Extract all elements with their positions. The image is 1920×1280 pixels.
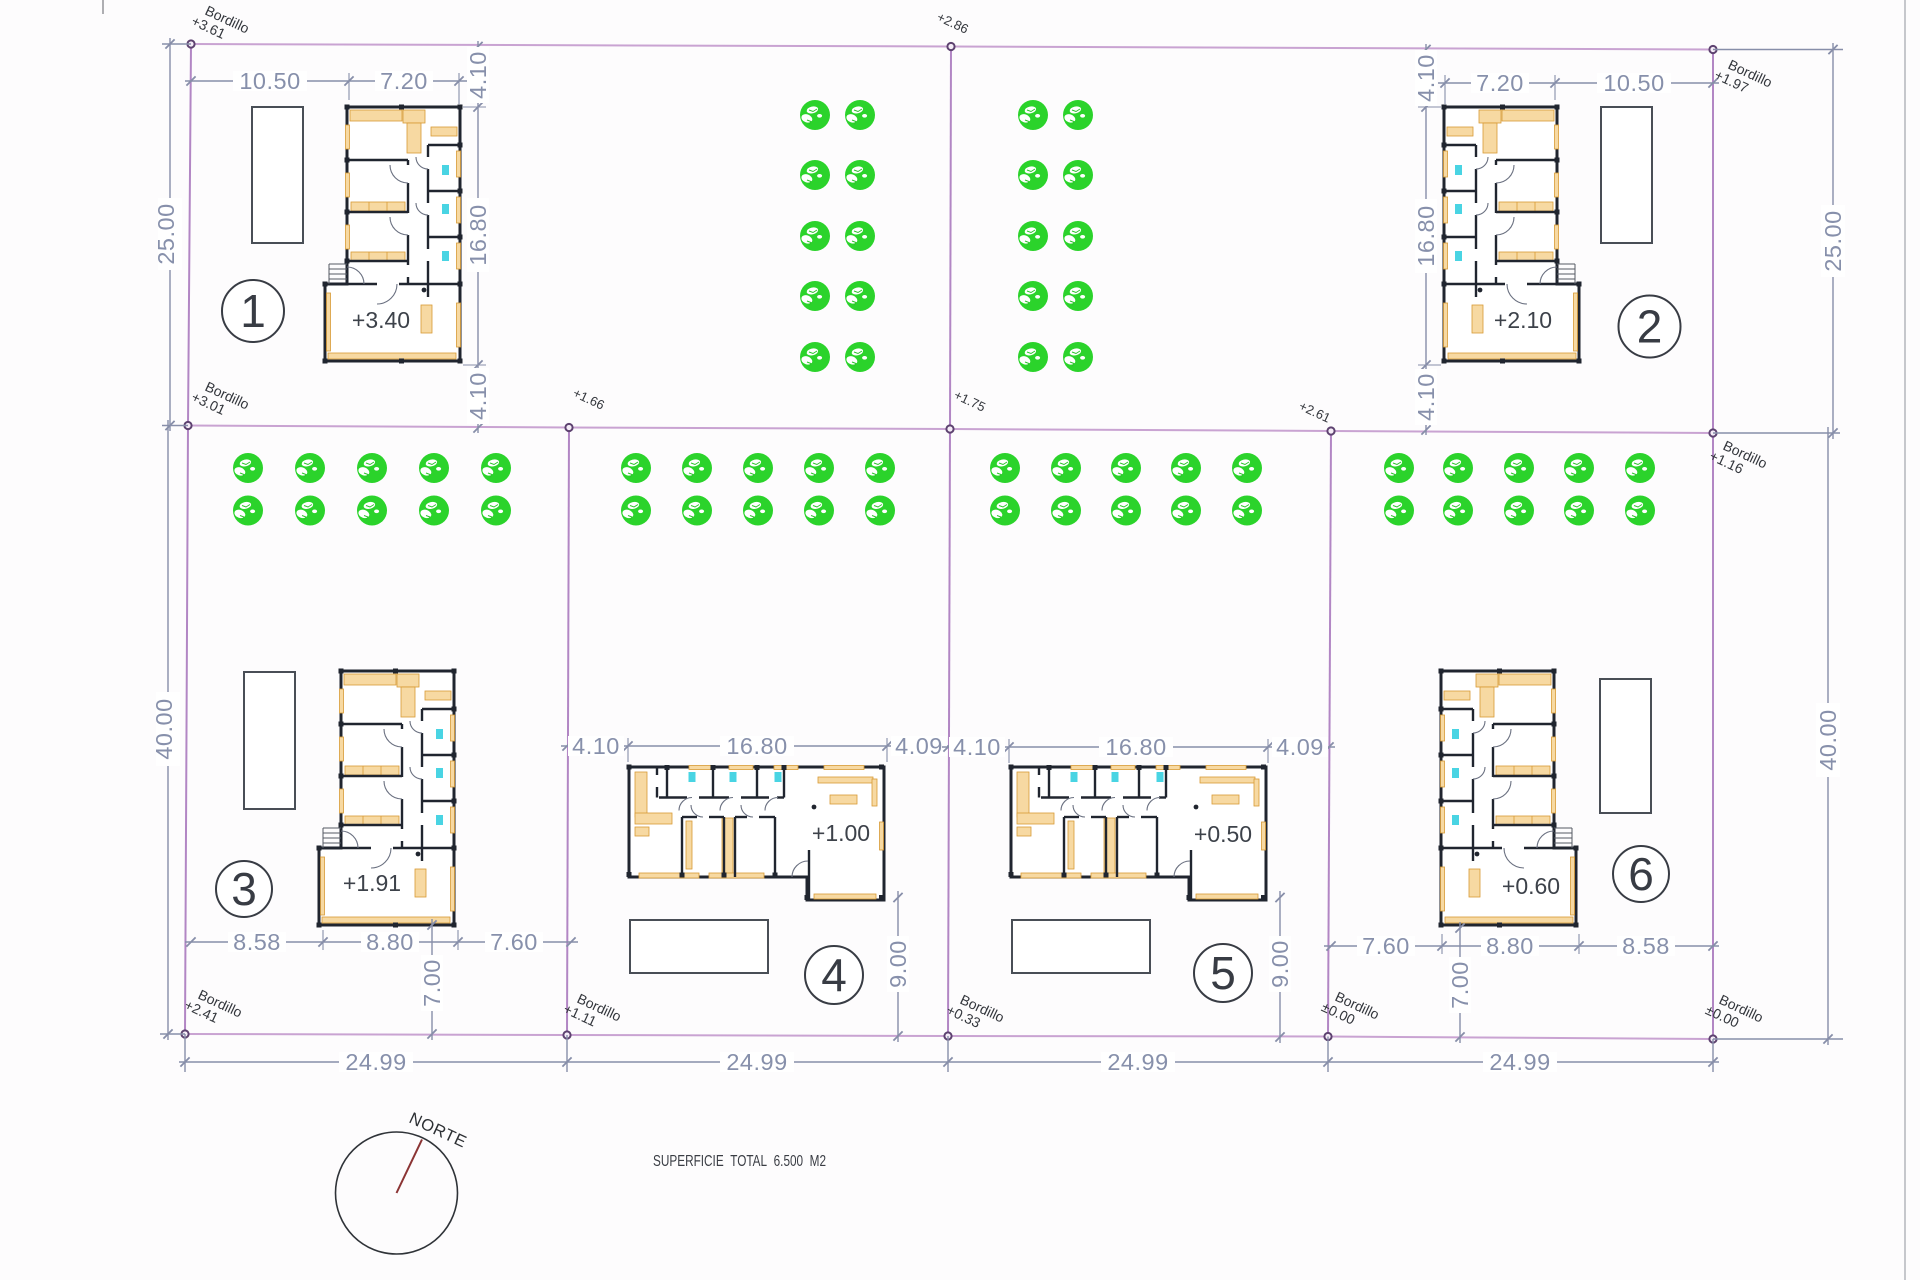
svg-text:4.10: 4.10: [953, 734, 1001, 760]
svg-text:+2.10: +2.10: [1494, 307, 1552, 333]
svg-text:8.80: 8.80: [1486, 933, 1534, 959]
svg-text:4: 4: [821, 949, 847, 1001]
svg-text:24.99: 24.99: [1489, 1049, 1550, 1075]
svg-text:7.60: 7.60: [490, 929, 538, 955]
svg-text:8.80: 8.80: [366, 929, 414, 955]
svg-text:7.20: 7.20: [1476, 70, 1524, 96]
svg-text:4.09: 4.09: [1276, 734, 1324, 760]
svg-text:9.00: 9.00: [1267, 940, 1293, 988]
svg-text:5: 5: [1210, 947, 1236, 999]
svg-text:4.09: 4.09: [895, 733, 943, 759]
svg-text:+0.50: +0.50: [1194, 821, 1252, 847]
svg-text:+1.91: +1.91: [343, 870, 401, 896]
svg-text:16.80: 16.80: [465, 204, 491, 265]
svg-text:10.50: 10.50: [239, 68, 300, 94]
svg-text:7.60: 7.60: [1362, 933, 1410, 959]
svg-text:40.00: 40.00: [1815, 709, 1841, 770]
svg-text:+1.00: +1.00: [812, 820, 870, 846]
svg-text:40.00: 40.00: [151, 698, 177, 759]
svg-text:8.58: 8.58: [1622, 933, 1670, 959]
svg-text:16.80: 16.80: [1413, 205, 1439, 266]
svg-text:24.99: 24.99: [345, 1049, 406, 1075]
svg-text:+0.60: +0.60: [1502, 873, 1560, 899]
svg-text:7.00: 7.00: [1447, 961, 1473, 1009]
svg-text:1: 1: [240, 285, 266, 337]
svg-text:10.50: 10.50: [1603, 70, 1664, 96]
svg-text:25.00: 25.00: [1820, 210, 1846, 271]
svg-text:7.20: 7.20: [380, 68, 428, 94]
svg-text:8.58: 8.58: [233, 929, 281, 955]
svg-text:16.80: 16.80: [726, 733, 787, 759]
svg-text:6: 6: [1628, 848, 1654, 900]
svg-text:7.00: 7.00: [419, 959, 445, 1007]
svg-text:24.99: 24.99: [726, 1049, 787, 1075]
svg-text:4.10: 4.10: [572, 733, 620, 759]
svg-text:4.10: 4.10: [1413, 54, 1439, 102]
svg-text:2: 2: [1637, 301, 1663, 353]
svg-text:SUPERFICIE TOTAL 6.500 M2: SUPERFICIE TOTAL 6.500 M2: [653, 1153, 826, 1170]
svg-text:4.10: 4.10: [1413, 373, 1439, 421]
svg-text:4.10: 4.10: [465, 372, 491, 420]
svg-text:9.00: 9.00: [885, 940, 911, 988]
svg-text:3: 3: [231, 863, 257, 915]
svg-text:24.99: 24.99: [1107, 1049, 1168, 1075]
svg-text:4.10: 4.10: [465, 51, 491, 99]
svg-text:25.00: 25.00: [153, 203, 179, 264]
svg-text:+3.40: +3.40: [352, 307, 410, 333]
svg-text:16.80: 16.80: [1105, 734, 1166, 760]
